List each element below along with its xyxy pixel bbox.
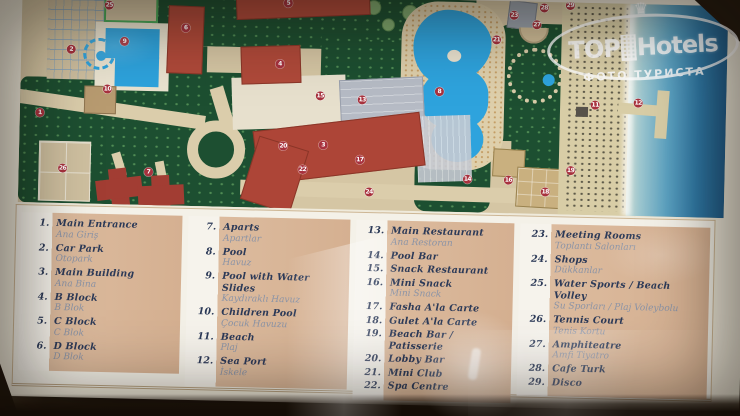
legend-item: 3.Main BuildingAna Bina	[20, 266, 178, 292]
map-marker-21: 21	[492, 35, 501, 44]
legend-item-name-tr: B Blok	[54, 303, 177, 317]
legend-item-name-tr: Çocuk Havuzu	[221, 318, 345, 332]
legend-column: 7.ApartsApartlar8.PoolHavuz9.Pool with W…	[185, 216, 351, 389]
legend-item-name-tr: D Blok	[53, 352, 176, 366]
legend-item: 20.Lobby Bar	[353, 353, 508, 368]
map-marker-17: 17	[355, 155, 364, 164]
legend-item: 12.Sea Portİskele	[185, 355, 344, 381]
building-d-block	[166, 5, 205, 74]
legend-item-name-en: Snack Restaurant	[390, 264, 510, 278]
legend: 1.Main EntranceAna Giriş2.Car ParkOtopar…	[12, 204, 716, 402]
legend-item-number: 11.	[186, 330, 214, 343]
map-marker-23: 23	[510, 11, 519, 20]
legend-item-number: 20.	[353, 353, 381, 366]
legend-item: 27.AmphiteatreAmfi Tiyatro	[517, 338, 704, 365]
hotel-tower-icon	[620, 34, 636, 61]
map-marker-11: 11	[591, 101, 600, 110]
legend-item: 4.B BlockB Blok	[19, 291, 177, 317]
watermark: ♛ TOP Hotels ФОТО ТУРИСТА	[543, 0, 740, 95]
map-marker-22: 22	[298, 165, 307, 174]
legend-item-name-tr: Ana Restoran	[391, 237, 511, 251]
legend-item-number: 6.	[18, 340, 46, 353]
legend-item-number: 3.	[20, 266, 48, 279]
legend-item-name-tr: Plaj	[220, 343, 344, 357]
waterslide-pool	[114, 56, 159, 87]
legend-item-number: 24.	[519, 253, 547, 266]
legend-item-number: 19.	[354, 328, 382, 341]
terrace	[416, 115, 472, 183]
legend-item: 18.Gulet A'la Carte	[354, 314, 509, 329]
legend-item-name-en: Gulet A'la Carte	[389, 315, 509, 329]
watermark-brand-right: Hotels	[636, 31, 718, 59]
legend-item-name-en: Beach Bar / Patisserie	[388, 329, 508, 355]
legend-item: 15.Snack Restaurant	[355, 263, 510, 278]
legend-item-name-tr: Toplantı Salonları	[555, 241, 707, 255]
map-marker-16: 16	[504, 176, 513, 185]
legend-item: 10.Children PoolÇocuk Havuzu	[186, 306, 345, 332]
legend-item-number: 29.	[517, 376, 545, 389]
legend-item-name-en: Fasha A'la Carte	[389, 302, 509, 316]
legend-item-number: 9.	[187, 270, 215, 283]
legend-item: 29.Disco	[517, 376, 704, 392]
map-marker-13: 13	[358, 95, 367, 104]
legend-item-number: 2.	[21, 242, 49, 255]
legend-item-number: 4.	[20, 291, 48, 304]
beach-building	[515, 167, 561, 209]
legend-item-number: 27.	[518, 338, 546, 351]
legend-item-number: 21.	[353, 366, 381, 379]
map-marker-12: 12	[634, 99, 643, 108]
legend-item-name-tr: C Blok	[54, 327, 177, 341]
map-marker-14: 14	[463, 175, 472, 184]
legend-item: 14.Pool Bar	[356, 249, 511, 264]
map-marker-10: 10	[103, 84, 112, 93]
legend-item-name-tr: Amfi Tiyatro	[552, 350, 704, 364]
legend-item: 11.BeachPlaj	[185, 330, 344, 356]
legend-item: 16.Mini SnackMini Snack	[355, 276, 510, 302]
legend-item-name-tr: Otopark	[55, 254, 178, 268]
legend-item: 2.Car ParkOtopark	[20, 242, 178, 268]
map-marker-15: 15	[316, 91, 325, 100]
legend-item: 21.Mini Club	[353, 366, 508, 381]
legend-item-name-tr: Dükkanlar	[554, 265, 706, 279]
building-b-block	[240, 45, 301, 85]
watermark-brand-left: TOP	[568, 36, 621, 63]
legend-item-name-tr: Mini Snack	[390, 289, 510, 303]
legend-item-number: 14.	[356, 249, 384, 262]
legend-item: 26.Tennis CourtTenis Kortu	[518, 313, 705, 340]
legend-item-number: 8.	[188, 245, 216, 258]
legend-item-number: 1.	[21, 217, 49, 230]
legend-item-name-en: Cafe Turk	[552, 363, 704, 378]
legend-item-name-en: Disco	[552, 377, 704, 392]
legend-item-name-tr: Ana Giriş	[56, 229, 179, 243]
legend-item-number: 7.	[188, 221, 216, 234]
legend-item: 19.Beach Bar / Patisserie	[354, 328, 509, 355]
map-marker-25: 25	[105, 0, 114, 9]
legend-item-number: 26.	[518, 313, 546, 326]
legend-item-name-tr: Apartlar	[223, 233, 347, 247]
legend-column: 1.Main EntranceAna Giriş2.Car ParkOtopar…	[18, 212, 183, 374]
photo-background: 1234567891011121314151617181920212223242…	[0, 0, 740, 416]
legend-item-number: 12.	[185, 355, 213, 368]
beach-hut	[576, 107, 588, 117]
legend-item: 24.ShopsDükkanlar	[519, 253, 706, 280]
legend-item-name-tr: İskele	[220, 367, 344, 381]
legend-item: 1.Main EntranceAna Giriş	[21, 217, 179, 243]
legend-item-name-en: Water Sports / Beach Volley	[554, 278, 706, 304]
legend-item-number: 18.	[354, 314, 382, 327]
legend-item-number: 15.	[355, 263, 383, 276]
legend-item-name-en: Spa Centre	[388, 380, 508, 394]
legend-item-number: 25.	[519, 277, 547, 290]
legend-item-number: 28.	[517, 362, 545, 375]
legend-item-number: 16.	[355, 276, 383, 289]
map-marker-20: 20	[279, 141, 288, 150]
legend-item: 17.Fasha A'la Carte	[354, 301, 509, 316]
legend-item: 7.ApartsApartlar	[188, 221, 347, 247]
legend-item-name-tr: Ana Bina	[55, 278, 178, 292]
legend-item-name-tr: Tenis Kortu	[553, 326, 705, 340]
legend-item-number: 10.	[186, 306, 214, 319]
map-marker-27: 27	[532, 20, 541, 29]
map-marker-19: 19	[566, 166, 575, 175]
legend-item-number: 17.	[354, 301, 382, 314]
legend-item-number: 23.	[520, 228, 548, 241]
legend-item-name-en: Lobby Bar	[388, 354, 508, 368]
legend-item-number: 5.	[19, 315, 47, 328]
legend-item: 6.D BlockD Blok	[18, 340, 176, 366]
legend-item-name-tr: Havuz	[222, 258, 346, 272]
legend-item-name-tr: Kaydıraklı Havuz	[222, 294, 346, 308]
legend-item: 5.C BlockC Blok	[19, 315, 177, 341]
legend-item: 23.Meeting RoomsToplantı Salonları	[520, 228, 707, 255]
legend-item-name-en: Pool with Water Slides	[222, 271, 346, 297]
legend-column: 23.Meeting RoomsToplantı Salonları24.Sho…	[517, 223, 711, 399]
legend-item: 13.Main RestaurantAna Restoran	[356, 225, 511, 251]
map-marker-24: 24	[365, 187, 374, 196]
legend-item-number: 13.	[356, 225, 384, 238]
legend-item: 8.PoolHavuz	[187, 245, 346, 271]
legend-item-name-en: Mini Club	[388, 367, 508, 381]
legend-item-number: 22.	[353, 380, 381, 393]
legend-item: 9.Pool with Water SlidesKaydıraklı Havuz	[187, 270, 347, 308]
map-marker-18: 18	[541, 187, 550, 196]
legend-item: 22.Spa Centre	[353, 380, 508, 395]
legend-item-name-en: Pool Bar	[391, 250, 511, 264]
map-marker-26: 26	[58, 163, 67, 172]
legend-column: 13.Main RestaurantAna Restoran14.Pool Ba…	[352, 220, 514, 403]
legend-item-name-tr: Su Sporları / Plaj Voleybolu	[553, 301, 705, 315]
photo-bottom-edge	[0, 394, 740, 416]
legend-item: 25.Water Sports / Beach VolleySu Sporlar…	[518, 277, 706, 315]
